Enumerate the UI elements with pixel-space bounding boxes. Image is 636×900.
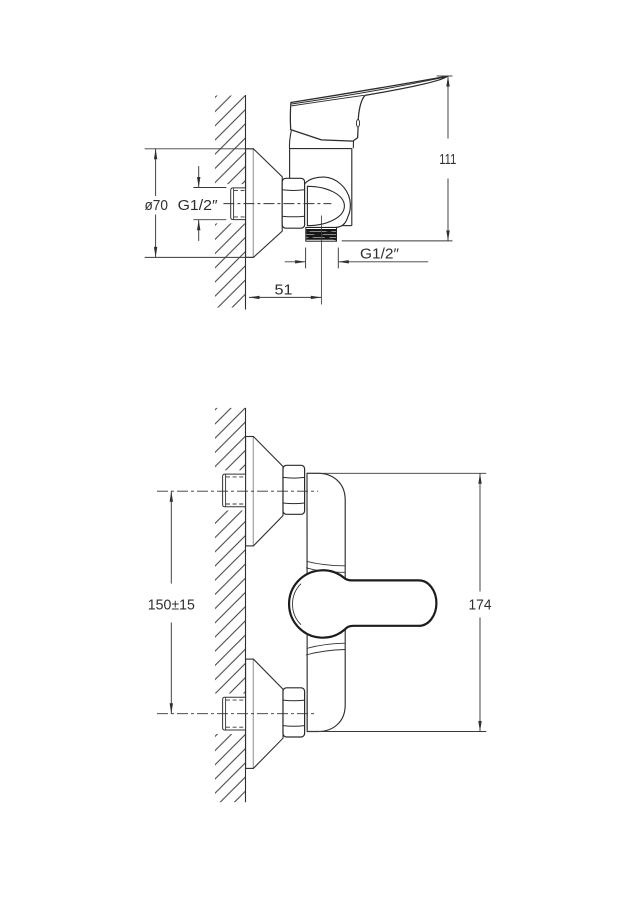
svg-text:G1/2″: G1/2″ [178,197,219,214]
svg-text:150±15: 150±15 [148,597,195,614]
svg-text:ø70: ø70 [144,197,168,214]
svg-text:51: 51 [275,282,293,299]
svg-text:111: 111 [439,151,456,168]
svg-text:G1/2″: G1/2″ [360,246,400,263]
svg-text:174: 174 [469,597,492,614]
